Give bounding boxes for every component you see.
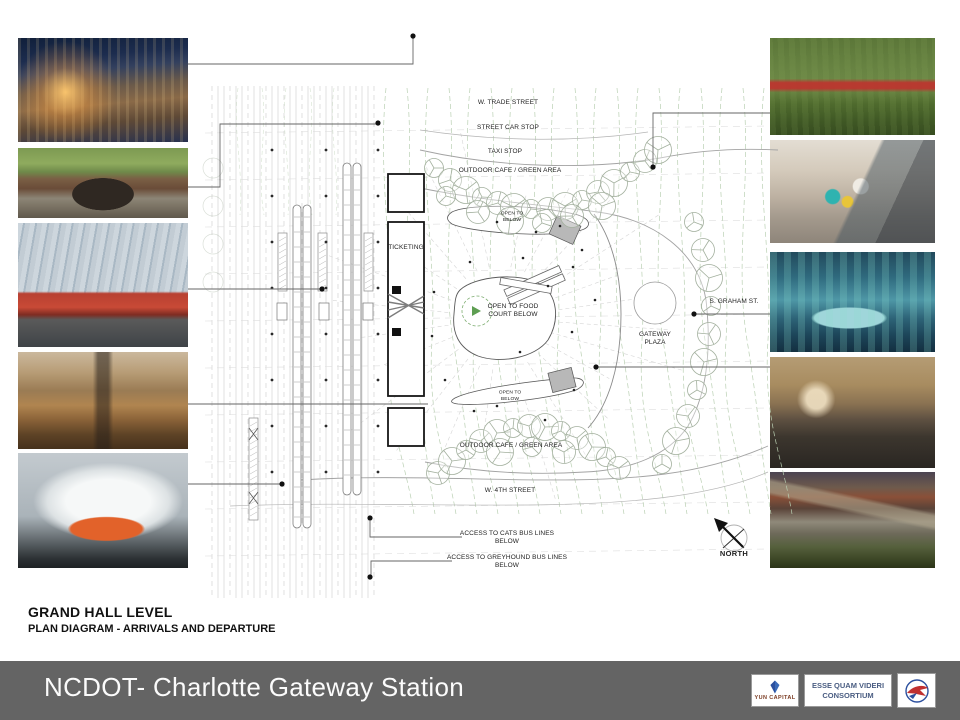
logo-consortium: ESSE QUAM VIDERI CONSORTIUM <box>804 674 892 707</box>
label-s-graham-st: S. GRAHAM ST. <box>710 298 759 306</box>
label-street-car-stop: STREET CAR STOP <box>477 124 539 132</box>
label-open-to-below-bottom: OPEN TO BELOW <box>499 390 522 402</box>
logo-strip: YUN CAPITAL ESSE QUAM VIDERI CONSORTIUM <box>751 673 936 708</box>
reference-photo-family-escalator <box>770 140 935 243</box>
label-access-cats-bus: ACCESS TO CATS BUS LINES BELOW <box>460 530 554 546</box>
project-title: NCDOT- Charlotte Gateway Station <box>44 672 464 703</box>
track-grid <box>205 86 768 598</box>
consortium-line1: ESSE QUAM VIDERI <box>812 681 884 691</box>
street-lines <box>230 130 778 506</box>
reference-photo-urban-park-cafe <box>770 38 935 135</box>
yun-capital-label: YUN CAPITAL <box>755 695 796 701</box>
consortium-line2: CONSORTIUM <box>822 691 873 701</box>
reference-photo-glass-trainshed-red-train <box>18 223 188 347</box>
plaza-fountain <box>634 282 676 324</box>
reference-photo-night-plaza-building <box>18 38 188 142</box>
label-north: NORTH <box>720 549 748 558</box>
landscape-contours <box>236 88 792 514</box>
logo-yun-capital: YUN CAPITAL <box>751 674 799 707</box>
label-outdoor-cafe-top: OUTDOOR CAFE / GREEN AREA <box>459 167 562 175</box>
food-court-escalators <box>504 266 565 305</box>
north-arrow-icon <box>714 518 747 551</box>
presentation-slide: W. TRADE STREET STREET CAR STOP TAXI STO… <box>0 0 960 720</box>
label-gateway-plaza: GATEWAY PLAZA <box>639 331 671 347</box>
label-open-to-below-top: OPEN TO BELOW <box>501 211 524 223</box>
label-w-4th-street: W. 4TH STREET <box>485 487 535 495</box>
label-outdoor-cafe-bottom: OUTDOOR CAFE / GREEN AREA <box>460 442 563 450</box>
label-open-to-food-court: OPEN TO FOOD COURT BELOW <box>488 303 539 319</box>
food-court-void <box>454 277 556 360</box>
escalator-block-top <box>549 216 581 245</box>
bird-emblem-icon <box>902 676 932 706</box>
ticket-box-south <box>388 408 424 446</box>
label-ticketing: TICKETING <box>388 244 424 252</box>
trains-and-platforms <box>249 163 373 528</box>
callout-dots <box>279 33 696 579</box>
ticketing-hall <box>388 222 424 396</box>
station-structures <box>388 174 676 446</box>
drawing-subtitle: PLAN DIAGRAM - ARRIVALS AND DEPARTURE <box>28 623 276 635</box>
ticket-box-north <box>388 174 424 212</box>
reference-photo-station-concourse-interior <box>18 352 188 449</box>
escalator-block-bottom <box>548 367 576 392</box>
reference-photo-atrium-fountain-plaza <box>770 252 935 352</box>
reference-photo-brick-station-arch <box>18 148 188 218</box>
label-w-trade-street: W. TRADE STREET <box>478 99 538 107</box>
logo-emblem <box>897 673 936 708</box>
column-dots <box>271 149 597 474</box>
label-taxi-stop: TAXI STOP <box>488 148 522 156</box>
trees <box>203 137 723 485</box>
radial-guides <box>321 131 684 500</box>
drawing-title: GRAND HALL LEVEL <box>28 604 173 620</box>
reference-photo-elevated-park-dusk <box>770 472 935 568</box>
open-to-below-void-bottom <box>452 378 584 404</box>
yun-capital-diamond-icon <box>768 680 782 694</box>
reference-photo-grand-hall-crowd <box>770 357 935 468</box>
reference-photo-highspeed-train <box>18 453 188 568</box>
footer-bar: NCDOT- Charlotte Gateway Station YUN CAP… <box>0 661 960 720</box>
open-to-below-void-top <box>448 206 589 234</box>
callout-leader-lines <box>188 36 770 575</box>
label-access-greyhound-bus: ACCESS TO GREYHOUND BUS LINES BELOW <box>447 554 567 570</box>
